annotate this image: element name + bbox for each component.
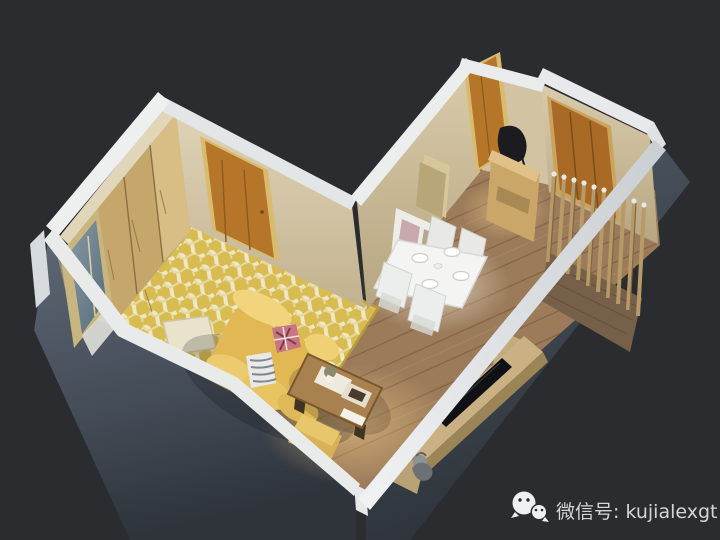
watermark-text: 微信号: kujialexgt bbox=[556, 501, 718, 523]
screenshot-root: 微信号: kujialexgt bbox=[0, 0, 720, 540]
striped-pillow bbox=[246, 352, 276, 388]
apartment-render: 微信号: kujialexgt bbox=[0, 0, 720, 540]
door-knob bbox=[260, 210, 264, 214]
